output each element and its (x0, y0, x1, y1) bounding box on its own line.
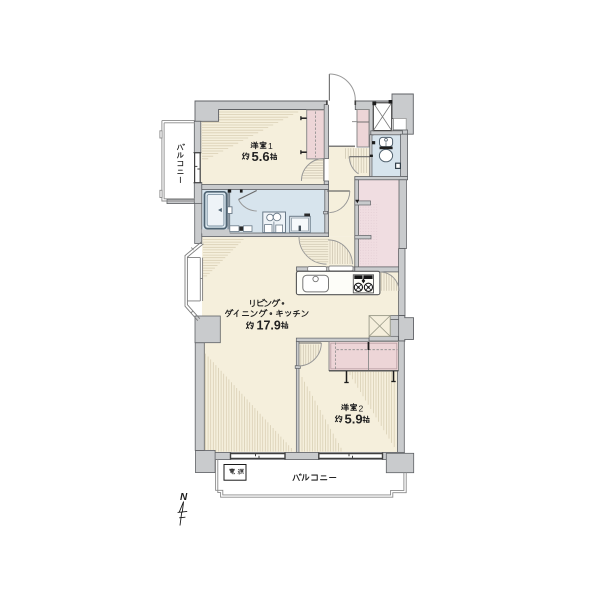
svg-text:5.9: 5.9 (345, 412, 363, 427)
svg-text:5.6: 5.6 (252, 149, 270, 164)
svg-text:N: N (180, 492, 188, 503)
svg-text:17.9: 17.9 (257, 319, 281, 333)
